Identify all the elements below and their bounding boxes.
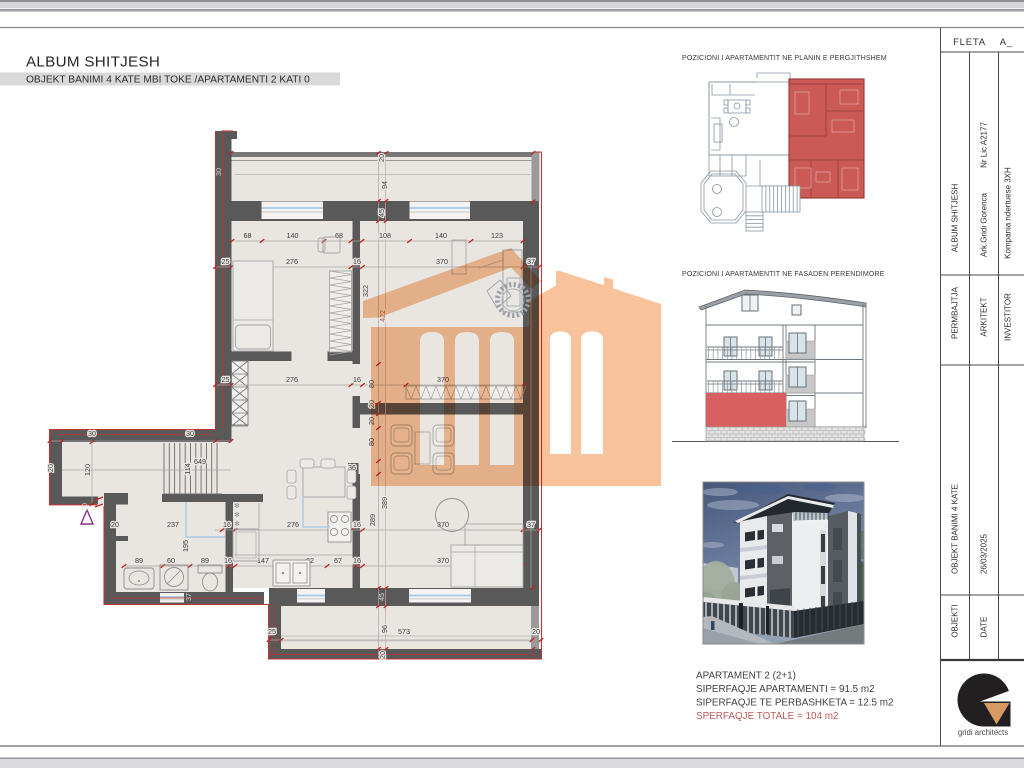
svg-text:114: 114 [183, 463, 192, 474]
svg-text:370: 370 [437, 556, 449, 565]
svg-text:SPERFAQJE TOTALE = 104 m2: SPERFAQJE TOTALE = 104 m2 [696, 711, 838, 722]
svg-text:OBJEKTI: OBJEKTI [951, 604, 960, 637]
svg-text:195: 195 [181, 540, 190, 552]
svg-text:237: 237 [167, 520, 179, 529]
svg-text:89: 89 [135, 556, 143, 565]
svg-text:37: 37 [527, 520, 535, 529]
svg-text:ARKITEKT: ARKITEKT [980, 297, 989, 336]
svg-text:68: 68 [244, 231, 252, 240]
svg-text:26/03/2025: 26/03/2025 [980, 533, 989, 574]
svg-text:276: 276 [286, 257, 298, 266]
svg-text:POZICIONI I APARTAMENTIT NE PL: POZICIONI I APARTAMENTIT NE PLANIN E PER… [682, 54, 887, 62]
svg-text:16: 16 [224, 556, 232, 565]
svg-text:20: 20 [111, 520, 119, 529]
svg-text:FLETA A_: FLETA A_ [953, 37, 1013, 48]
svg-text:16: 16 [353, 520, 361, 529]
svg-text:SIPERFAQJE TE PERBASHKETA = 12: SIPERFAQJE TE PERBASHKETA = 12.5 m2 [696, 698, 893, 709]
svg-text:25: 25 [222, 257, 230, 266]
svg-text:OBJEKT BANIMI 4 KATE: OBJEKT BANIMI 4 KATE [951, 484, 960, 574]
svg-text:20: 20 [46, 464, 55, 472]
svg-text:Nr Lic A2177: Nr Lic A2177 [980, 122, 989, 168]
svg-text:✻: ✻ [234, 502, 240, 510]
svg-text:SIPERFAQJE APARTAMENTI = 91.5: SIPERFAQJE APARTAMENTI = 91.5 m2 [696, 684, 875, 695]
svg-text:89: 89 [201, 556, 209, 565]
svg-text:gridi architects: gridi architects [958, 728, 1008, 737]
svg-text:DATE: DATE [980, 617, 989, 638]
svg-text:123: 123 [491, 231, 503, 240]
svg-text:16: 16 [353, 556, 361, 565]
svg-text:96: 96 [380, 625, 389, 633]
svg-text:INVESTITOR: INVESTITOR [1004, 293, 1013, 341]
svg-text:Kompania ndertuese 3XH: Kompania ndertuese 3XH [1004, 167, 1013, 259]
svg-text:OBJEKT BANIMI 4 KATE MBI TOKE: OBJEKT BANIMI 4 KATE MBI TOKE /APARTAMEN… [26, 74, 310, 85]
svg-text:37: 37 [184, 593, 193, 601]
svg-text:573: 573 [398, 627, 410, 636]
svg-text:ALBUM SHITJESH: ALBUM SHITJESH [26, 54, 160, 71]
svg-text:POZICIONI I APARTAMENTIT NE FA: POZICIONI I APARTAMENTIT NE FASADEN PERE… [682, 270, 885, 278]
svg-text:649: 649 [194, 457, 206, 466]
svg-text:16: 16 [223, 520, 231, 529]
svg-text:45: 45 [377, 209, 386, 217]
svg-text:68: 68 [335, 231, 343, 240]
svg-text:✻: ✻ [234, 511, 240, 519]
svg-text:108: 108 [379, 231, 391, 240]
svg-text:30: 30 [88, 429, 96, 438]
svg-text:322: 322 [361, 285, 370, 297]
svg-text:APARTAMENT 2 (2+1): APARTAMENT 2 (2+1) [696, 671, 796, 682]
svg-text:20: 20 [80, 503, 89, 511]
svg-text:30: 30 [186, 429, 194, 438]
svg-text:140: 140 [287, 231, 299, 240]
svg-text:25: 25 [268, 627, 276, 636]
svg-text:25: 25 [222, 375, 230, 384]
svg-text:Ark.Gridi Gorenca: Ark.Gridi Gorenca [980, 192, 989, 257]
svg-text:94: 94 [380, 181, 389, 189]
svg-text:16: 16 [353, 257, 361, 266]
svg-text:✻: ✻ [234, 520, 240, 528]
svg-text:45: 45 [377, 593, 386, 601]
svg-text:140: 140 [435, 231, 447, 240]
svg-text:30: 30 [214, 168, 223, 176]
svg-text:60: 60 [167, 556, 175, 565]
svg-text:20: 20 [532, 627, 540, 636]
svg-text:16: 16 [353, 375, 361, 384]
svg-text:20: 20 [378, 651, 387, 659]
svg-text:389: 389 [380, 497, 389, 509]
svg-text:20: 20 [377, 154, 386, 162]
svg-text:370: 370 [436, 257, 448, 266]
svg-text:276: 276 [286, 375, 298, 384]
svg-text:PERMBAJTJA: PERMBAJTJA [951, 286, 960, 339]
svg-text:276: 276 [287, 520, 299, 529]
svg-text:120: 120 [83, 464, 92, 476]
svg-text:ALBUM SHITJESH: ALBUM SHITJESH [951, 184, 960, 253]
svg-text:37: 37 [527, 257, 535, 266]
svg-text:289: 289 [368, 514, 377, 526]
svg-text:67: 67 [334, 556, 342, 565]
